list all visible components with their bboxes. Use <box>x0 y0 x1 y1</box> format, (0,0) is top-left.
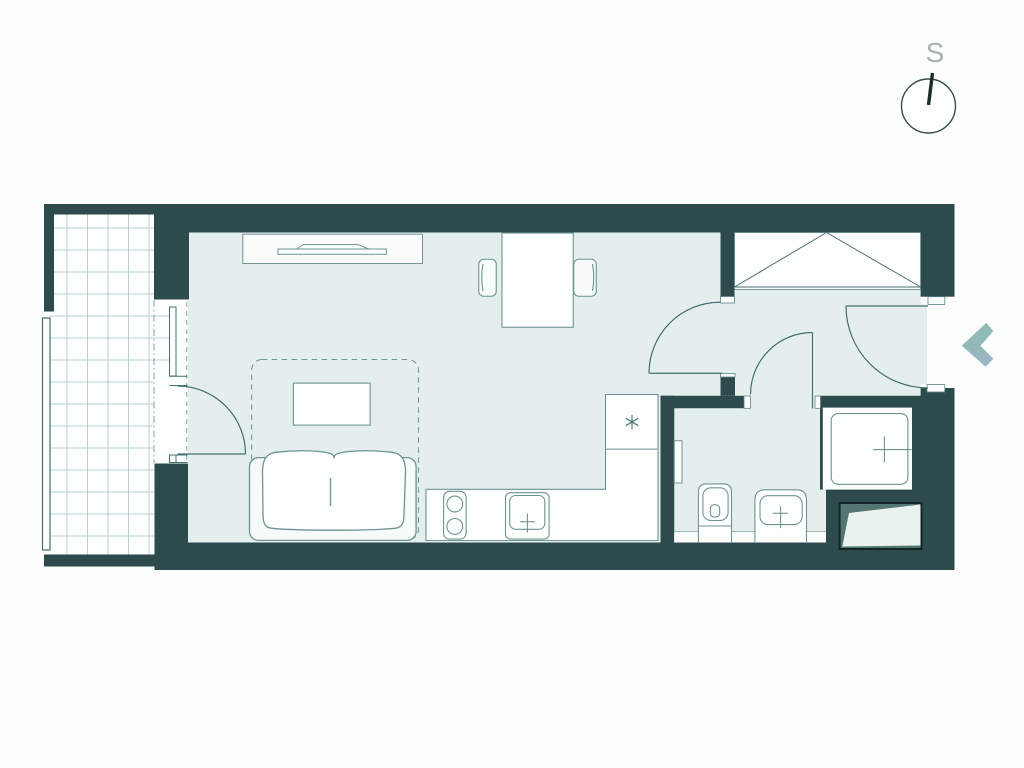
svg-text:S: S <box>926 37 945 68</box>
